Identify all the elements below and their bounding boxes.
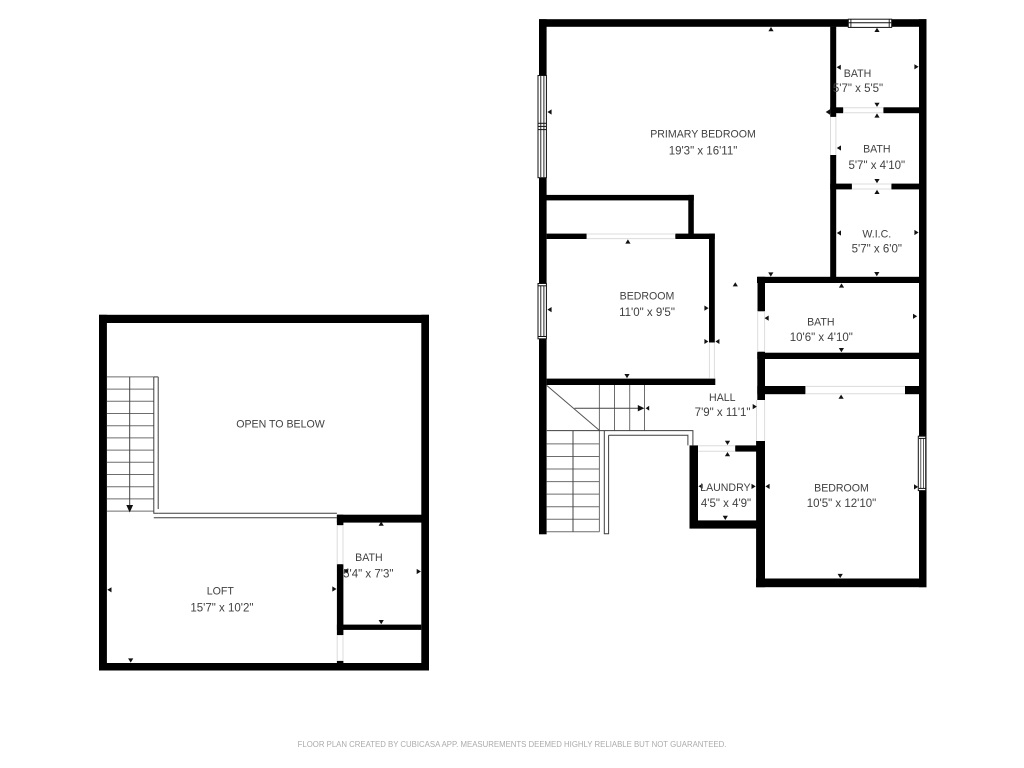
svg-text:11'0" x 9'5": 11'0" x 9'5": [619, 307, 675, 319]
svg-text:LOFT: LOFT: [207, 586, 235, 598]
svg-text:10'5" x 12'10": 10'5" x 12'10": [807, 498, 876, 510]
svg-text:5'7" x 6'0": 5'7" x 6'0": [852, 244, 902, 256]
svg-text:FLOOR PLAN CREATED BY CUBICASA: FLOOR PLAN CREATED BY CUBICASA APP. MEAS…: [298, 740, 727, 749]
svg-text:BEDROOM: BEDROOM: [814, 482, 869, 494]
svg-text:15'7" x 10'2": 15'7" x 10'2": [190, 603, 253, 615]
svg-text:5'7" x 4'10": 5'7" x 4'10": [848, 160, 905, 172]
svg-text:5'4" x 7'3": 5'4" x 7'3": [343, 568, 393, 580]
svg-text:19'3" x 16'11": 19'3" x 16'11": [669, 146, 738, 158]
svg-text:BATH: BATH: [863, 143, 890, 155]
svg-text:HALL: HALL: [709, 392, 736, 404]
svg-text:BEDROOM: BEDROOM: [620, 291, 675, 303]
svg-text:W.I.C.: W.I.C.: [862, 229, 891, 241]
svg-text:5'7" x 5'5": 5'7" x 5'5": [833, 83, 883, 95]
svg-text:LAUNDRY: LAUNDRY: [700, 482, 750, 494]
svg-text:BATH: BATH: [807, 317, 834, 329]
svg-text:7'9" x 11'1": 7'9" x 11'1": [695, 407, 751, 419]
svg-text:10'6" x 4'10": 10'6" x 4'10": [790, 332, 853, 344]
svg-text:PRIMARY BEDROOM: PRIMARY BEDROOM: [650, 129, 756, 141]
svg-text:OPEN TO BELOW: OPEN TO BELOW: [236, 418, 325, 430]
svg-text:BATH: BATH: [844, 68, 871, 80]
svg-text:4'5" x 4'9": 4'5" x 4'9": [701, 498, 751, 510]
svg-text:BATH: BATH: [355, 552, 382, 564]
